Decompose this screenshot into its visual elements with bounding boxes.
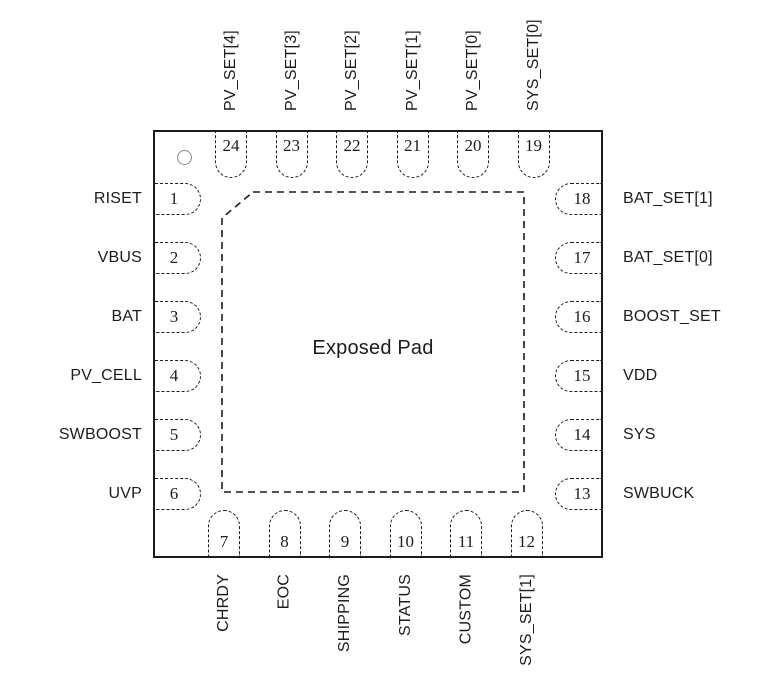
pin-pad-6: 6 [155,478,201,510]
pin-pad-22: 22 [336,132,368,178]
pin-label-17: BAT_SET[0] [623,248,766,268]
pin-number-4: 4 [170,366,179,386]
pin-number-6: 6 [170,484,179,504]
pin-number-17: 17 [574,248,591,268]
pin-number-20: 20 [465,136,482,156]
pin-label-23: PV_SET[3] [283,30,301,111]
pin-pad-23: 23 [276,132,308,178]
pin-number-3: 3 [170,307,179,327]
pin-pad-17: 17 [555,242,601,274]
pin-pad-5: 5 [155,419,201,451]
pin-pad-10: 10 [390,510,422,556]
pin-pad-13: 13 [555,478,601,510]
pin-number-9: 9 [341,532,350,552]
pin-pad-8: 8 [269,510,301,556]
pin-number-12: 12 [518,532,535,552]
pin-pad-12: 12 [511,510,543,556]
pin-number-8: 8 [280,532,289,552]
pin-label-9: SHIPPING [336,574,354,652]
pin-number-22: 22 [344,136,361,156]
pin-number-16: 16 [574,307,591,327]
pin-label-22: PV_SET[2] [343,30,361,111]
pin-pad-9: 9 [329,510,361,556]
pin-number-14: 14 [574,425,591,445]
pin-number-19: 19 [525,136,542,156]
pin-pad-20: 20 [457,132,489,178]
pinout-diagram: Exposed Pad 1RISET2VBUS3BAT4PV_CELL5SWBO… [0,0,766,677]
pin-label-6: UVP [0,484,142,504]
pin-pad-2: 2 [155,242,201,274]
pin-pad-15: 15 [555,360,601,392]
pin-label-1: RISET [0,189,142,209]
pin-pad-21: 21 [397,132,429,178]
pin-pad-19: 19 [518,132,550,178]
pin-pad-14: 14 [555,419,601,451]
pin-label-16: BOOST_SET [623,307,766,327]
pin-number-13: 13 [574,484,591,504]
pin-number-15: 15 [574,366,591,386]
pin-label-13: SWBUCK [623,484,766,504]
pin-label-10: STATUS [397,574,415,636]
pin-label-15: VDD [623,366,766,386]
pin-label-14: SYS [623,425,766,445]
pin-number-7: 7 [220,532,229,552]
pin-label-19: SYS_SET[0] [525,19,543,111]
pin-number-18: 18 [574,189,591,209]
pin-number-1: 1 [170,189,179,209]
pin-label-18: BAT_SET[1] [623,189,766,209]
exposed-pad-label: Exposed Pad [273,335,473,361]
pin-pad-18: 18 [555,183,601,215]
pin-label-4: PV_CELL [0,366,142,386]
pin-pad-11: 11 [450,510,482,556]
pin-number-21: 21 [404,136,421,156]
pin-number-10: 10 [397,532,414,552]
pin-pad-7: 7 [208,510,240,556]
pin-label-5: SWBOOST [0,425,142,445]
pin-pad-1: 1 [155,183,201,215]
pin-label-20: PV_SET[0] [464,30,482,111]
pin-pad-4: 4 [155,360,201,392]
pin-label-24: PV_SET[4] [222,30,240,111]
pin-1-indicator-icon [177,150,192,165]
pin-pad-24: 24 [215,132,247,178]
pin-label-2: VBUS [0,248,142,268]
pin-label-12: SYS_SET[1] [518,574,536,666]
pin-label-21: PV_SET[1] [404,30,422,111]
pin-pad-16: 16 [555,301,601,333]
pin-label-8: EOC [276,574,294,609]
pin-label-7: CHRDY [215,574,233,632]
pin-number-24: 24 [223,136,240,156]
pin-label-3: BAT [0,307,142,327]
pin-number-2: 2 [170,248,179,268]
pin-label-11: CUSTOM [457,574,475,644]
pin-pad-3: 3 [155,301,201,333]
pin-number-5: 5 [170,425,179,445]
pin-number-23: 23 [283,136,300,156]
pin-number-11: 11 [458,532,474,552]
